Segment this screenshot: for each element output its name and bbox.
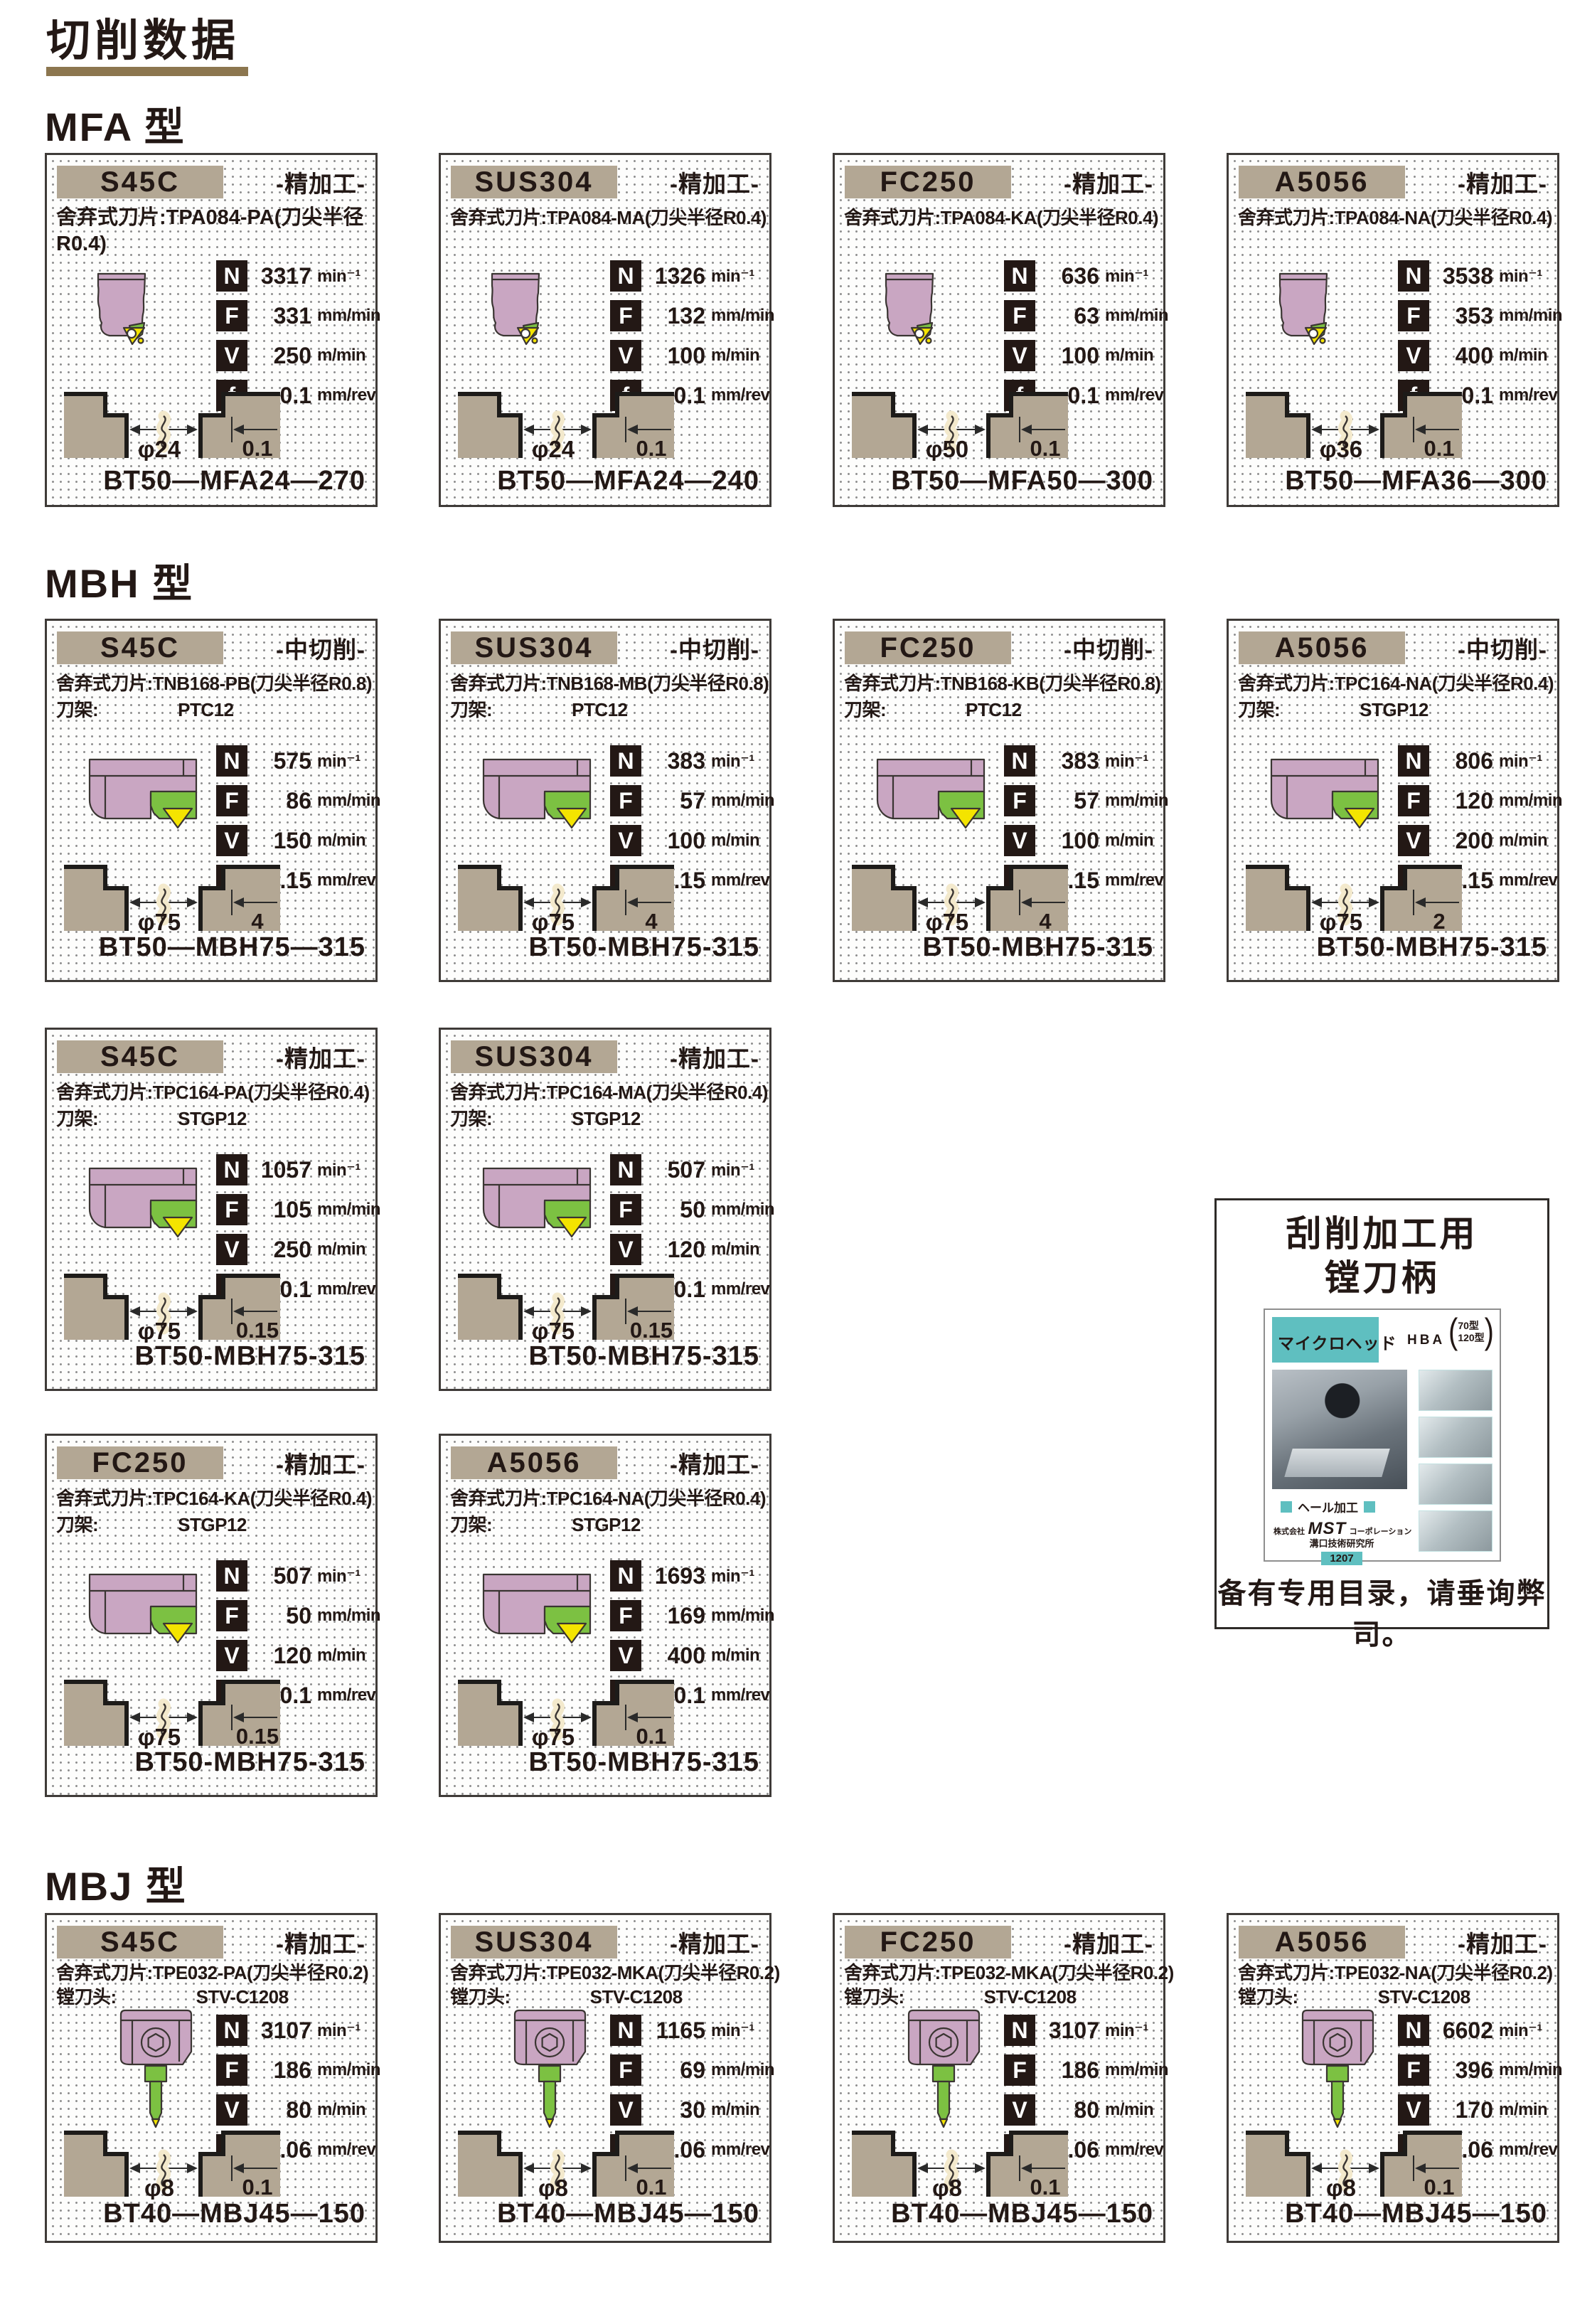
variant-120: 120型	[1458, 1332, 1484, 1343]
cutting-data-card: SUS304 -精加工- 舍弃式刀片:TPE032-MKA(刀尖半径R0.2) …	[439, 1913, 771, 2243]
param-row-feed: F 57 mm/min	[1004, 785, 1168, 816]
bore-diameter-label: φ24	[138, 436, 181, 461]
param-row-cutting-speed: V 400 m/min	[610, 1640, 774, 1671]
n-value: 3107	[253, 2017, 311, 2044]
material-badge: S45C	[57, 631, 223, 664]
holder-value: STV-C1208	[590, 1985, 683, 2009]
cut-depth-label: 0.1	[636, 2175, 666, 2200]
f-value: 396	[1435, 2057, 1493, 2084]
promo-title-line1: 刮削加工用	[1286, 1214, 1478, 1254]
insert-label: 舍弃式刀片:	[1238, 207, 1335, 228]
tool-info: 舍弃式刀片:TPC164-NA(刀尖半径R0.4) 刀架: STGP12	[450, 1486, 767, 1538]
param-row-spindle-speed: N 1057 min⁻¹	[216, 1154, 380, 1185]
insert-value: TPE032-MKA(刀尖半径R0.2)	[941, 1962, 1174, 1983]
workpiece-diagram-icon: φ75 0.15	[452, 1272, 680, 1343]
v-value: 250	[253, 343, 311, 369]
process-label: -精加工-	[276, 1446, 365, 1480]
v-value: 100	[1041, 343, 1099, 369]
cutting-data-card: S45C -精加工- 舍弃式刀片:TPE032-PA(刀尖半径R0.2) 镗刀头…	[45, 1913, 378, 2243]
holder-label: 刀架:	[450, 697, 492, 723]
card-row-mbh-1: S45C -中切削- 舍弃式刀片:TNB168-PB(刀尖半径R0.8) 刀架:…	[45, 619, 1559, 982]
param-row-feed: F 57 mm/min	[610, 785, 774, 816]
cut-depth-label: 4	[251, 909, 264, 934]
material-name: FC250	[880, 166, 976, 198]
holder-spec-line: 刀架: STGP12	[56, 1106, 373, 1132]
insert-spec-line: 舍弃式刀片:TPC164-KA(刀尖半径R0.4)	[56, 1486, 373, 1512]
cutting-parameters: N 1326 min⁻¹ F 132 mm/min V 100 m/min f …	[610, 260, 774, 411]
cutting-data-card: FC250 -精加工- 舍弃式刀片:TPC164-KA(刀尖半径R0.4) 刀架…	[45, 1434, 378, 1797]
insert-spec-line: 舍弃式刀片:TPA084-PA(刀尖半径R0.4)	[56, 205, 373, 257]
holder-spec-line: 刀架: STGP12	[450, 1512, 767, 1538]
insert-spec-line: 舍弃式刀片:TNB168-PB(刀尖半径R0.8)	[56, 671, 373, 697]
n-unit: min⁻¹	[711, 266, 754, 287]
holder-label: 镗刀头:	[844, 1985, 904, 2009]
insert-value: TNB168-PB(刀尖半径R0.8)	[153, 673, 372, 694]
catalog-page: 切削数据 MFA 型 S45C -精加工- 舍弃式刀片:TPA084-PA(刀尖…	[0, 0, 1570, 2324]
v-unit: m/min	[1499, 831, 1547, 851]
n-unit: min⁻¹	[711, 1566, 754, 1587]
v-icon: V	[216, 825, 247, 856]
material-badge: S45C	[57, 166, 223, 198]
n-icon: N	[610, 2015, 641, 2046]
fr-unit: mm/rev	[317, 870, 375, 890]
param-row-cutting-speed: V 100 m/min	[1004, 825, 1168, 856]
cut-depth-label: 0.1	[636, 436, 666, 461]
fr-unit: mm/rev	[317, 1685, 375, 1705]
n-unit: min⁻¹	[711, 2020, 754, 2041]
f-icon: F	[1398, 300, 1429, 331]
process-tag: ヘール加工	[1281, 1498, 1375, 1515]
v-value: 30	[647, 2097, 705, 2123]
boring-head-tool-icon	[115, 2008, 197, 2128]
teal-square-icon	[1364, 1501, 1375, 1513]
holder-label: 镗刀头:	[1238, 1985, 1298, 2009]
cutting-data-card: A5056 -中切削- 舍弃式刀片:TPC164-NA(刀尖半径R0.4) 刀架…	[1227, 619, 1559, 982]
insert-label: 舍弃式刀片:	[844, 673, 941, 694]
machine-photo	[1272, 1370, 1407, 1489]
cut-depth-label: 0.15	[236, 1318, 279, 1343]
v-value: 100	[647, 828, 705, 854]
fr-unit: mm/rev	[1105, 2140, 1163, 2160]
fr-unit: mm/rev	[317, 385, 375, 405]
section-title-mbj: MBJ 型	[45, 1855, 187, 1912]
material-name: FC250	[92, 1447, 188, 1479]
catalog-model: HBA	[1407, 1333, 1445, 1348]
material-name: A5056	[1275, 166, 1369, 198]
product-code: BT50—MFA24—240	[497, 466, 759, 496]
f-unit: mm/min	[711, 791, 774, 811]
material-badge: A5056	[1239, 631, 1405, 664]
insert-label: 舍弃式刀片:	[56, 1488, 153, 1509]
v-unit: m/min	[711, 2100, 759, 2120]
face-cutting-tool-icon	[92, 272, 149, 346]
catalog-number-badge: 1207	[1321, 1552, 1362, 1565]
f-unit: mm/min	[1105, 791, 1168, 811]
card-header: S45C -精加工-	[57, 1925, 368, 1959]
insert-label: 舍弃式刀片:	[56, 206, 166, 229]
n-unit: min⁻¹	[1499, 266, 1542, 287]
cut-depth-label: 0.1	[1424, 436, 1454, 461]
insert-value: TPE032-NA(刀尖半径R0.2)	[1335, 1962, 1553, 1983]
card-header: A5056 -中切削-	[1239, 631, 1550, 665]
holder-value: STGP12	[572, 1512, 641, 1538]
holder-value: STV-C1208	[196, 1985, 289, 2009]
insert-label: 舍弃式刀片:	[56, 1962, 153, 1983]
cutting-parameters: N 3538 min⁻¹ F 353 mm/min V 400 m/min f …	[1398, 260, 1562, 411]
tool-info: 舍弃式刀片:TPC164-KA(刀尖半径R0.4) 刀架: STGP12	[56, 1486, 373, 1538]
process-label: -精加工-	[670, 1925, 759, 1959]
catalog-product-name: マイクロヘッド	[1278, 1330, 1397, 1354]
n-value: 3107	[1041, 2017, 1099, 2044]
face-cutting-tool-icon	[486, 272, 543, 346]
company-suffix: コーポレーション	[1350, 1528, 1412, 1536]
card-row-mbj: S45C -精加工- 舍弃式刀片:TPE032-PA(刀尖半径R0.2) 镗刀头…	[45, 1913, 1559, 2243]
n-value: 6602	[1435, 2017, 1493, 2044]
material-badge: FC250	[57, 1446, 223, 1479]
bore-diameter-label: φ24	[532, 436, 575, 461]
holder-value: STGP12	[572, 1106, 641, 1132]
material-name: SUS304	[475, 632, 594, 664]
product-code: BT40—MBJ45—150	[497, 2199, 759, 2229]
v-value: 250	[253, 1237, 311, 1263]
card-header: FC250 -精加工-	[845, 1925, 1156, 1959]
product-code: BT40—MBJ45—150	[103, 2199, 365, 2229]
param-row-cutting-speed: V 250 m/min	[216, 1234, 380, 1265]
material-badge: SUS304	[451, 166, 617, 198]
cut-depth-label: 0.15	[630, 1318, 673, 1343]
f-value: 353	[1435, 303, 1493, 329]
promo-note: 备有专用目录，请垂询弊司。	[1217, 1570, 1547, 1653]
insert-value: TPC164-NA(刀尖半径R0.4)	[547, 1488, 766, 1509]
param-row-cutting-speed: V 80 m/min	[216, 2094, 380, 2126]
v-unit: m/min	[317, 1240, 365, 1259]
product-code: BT40—MBJ45—150	[1285, 2199, 1547, 2229]
f-unit: mm/min	[317, 1200, 380, 1220]
fr-unit: mm/rev	[1499, 2140, 1557, 2160]
company-prefix: 株式会社	[1273, 1528, 1305, 1536]
boring-head-tool-icon	[1297, 2008, 1379, 2128]
bore-diameter-label: φ75	[532, 1318, 575, 1343]
v-icon: V	[216, 2094, 247, 2126]
v-value: 100	[1041, 828, 1099, 854]
param-row-cutting-speed: V 30 m/min	[610, 2094, 774, 2126]
insert-spec-line: 舍弃式刀片:TPC164-NA(刀尖半径R0.4)	[1238, 671, 1554, 697]
holder-spec-line: 镗刀头: STV-C1208	[56, 1985, 373, 2009]
boring-bar-tool-icon	[478, 757, 595, 830]
v-unit: m/min	[711, 1240, 759, 1259]
insert-spec-line: 舍弃式刀片:TPC164-NA(刀尖半径R0.4)	[450, 1486, 767, 1512]
v-icon: V	[216, 1234, 247, 1265]
f-icon: F	[610, 1194, 641, 1225]
f-unit: mm/min	[1499, 2060, 1562, 2080]
card-header: S45C -精加工-	[57, 1040, 368, 1074]
holder-label: 刀架:	[844, 697, 886, 723]
promo-title-line2: 镗刀柄	[1325, 1258, 1440, 1298]
n-icon: N	[610, 1560, 641, 1592]
tool-info: 舍弃式刀片:TPC164-PA(刀尖半径R0.4) 刀架: STGP12	[56, 1080, 373, 1132]
param-row-spindle-speed: N 3107 min⁻¹	[1004, 2015, 1168, 2046]
process-label: -精加工-	[1064, 165, 1153, 199]
workpiece-diagram-icon: φ75 0.15	[58, 1678, 286, 1749]
material-badge: SUS304	[451, 1926, 617, 1958]
holder-spec-line: 刀架: STGP12	[1238, 697, 1554, 723]
holder-label: 刀架:	[450, 1106, 492, 1132]
card-header: S45C -中切削-	[57, 631, 368, 665]
v-unit: m/min	[317, 1646, 365, 1665]
insert-value: TPE032-MKA(刀尖半径R0.2)	[547, 1962, 780, 1983]
n-value: 575	[253, 748, 311, 774]
v-value: 400	[647, 1643, 705, 1669]
param-row-feed: F 63 mm/min	[1004, 300, 1168, 331]
holder-label: 刀架:	[56, 697, 98, 723]
f-icon: F	[1398, 785, 1429, 816]
param-row-cutting-speed: V 100 m/min	[1004, 340, 1168, 371]
material-name: S45C	[100, 1926, 180, 1958]
card-header: SUS304 -精加工-	[451, 165, 762, 199]
v-unit: m/min	[1499, 346, 1547, 366]
v-unit: m/min	[711, 1646, 759, 1665]
param-row-spindle-speed: N 1693 min⁻¹	[610, 1560, 774, 1592]
section-title-mfa: MFA 型	[45, 95, 186, 153]
f-value: 186	[1041, 2057, 1099, 2084]
n-unit: min⁻¹	[317, 266, 361, 287]
n-value: 3317	[253, 263, 311, 289]
v-value: 80	[253, 2097, 311, 2123]
n-value: 1326	[647, 263, 705, 289]
v-icon: V	[216, 1640, 247, 1671]
bore-diameter-label: φ8	[1326, 2175, 1356, 2200]
insert-label: 舍弃式刀片:	[450, 1488, 547, 1509]
tool-info: 舍弃式刀片:TPA084-KA(刀尖半径R0.4)	[844, 205, 1160, 231]
f-icon: F	[1004, 785, 1035, 816]
material-badge: FC250	[845, 631, 1011, 664]
f-icon: F	[1004, 300, 1035, 331]
holder-spec-line: 刀架: PTC12	[56, 697, 373, 723]
product-code: BT50-MBH75-315	[529, 1747, 759, 1778]
material-badge: A5056	[1239, 166, 1405, 198]
bore-diameter-label: φ36	[1320, 436, 1362, 461]
tool-info: 舍弃式刀片:TNB168-MB(刀尖半径R0.8) 刀架: PTC12	[450, 671, 767, 723]
title-underline	[46, 67, 248, 76]
f-value: 169	[647, 1603, 705, 1629]
param-row-feed: F 50 mm/min	[610, 1194, 774, 1225]
f-value: 186	[253, 2057, 311, 2084]
param-row-cutting-speed: V 120 m/min	[610, 1234, 774, 1265]
n-icon: N	[1398, 2015, 1429, 2046]
card-header: S45C -精加工-	[57, 165, 368, 199]
process-label: -精加工-	[670, 1446, 759, 1480]
process-label: -精加工-	[670, 1040, 759, 1074]
param-row-feed: F 132 mm/min	[610, 300, 774, 331]
holder-value: PTC12	[572, 697, 627, 723]
f-unit: mm/min	[317, 2060, 380, 2080]
bore-diameter-label: φ75	[532, 1724, 575, 1749]
v-value: 120	[647, 1237, 705, 1263]
cutting-data-card: A5056 -精加工- 舍弃式刀片:TPA084-NA(刀尖半径R0.4)	[1227, 153, 1559, 507]
fr-unit: mm/rev	[711, 1279, 769, 1299]
n-icon: N	[1004, 2015, 1035, 2046]
param-row-cutting-speed: V 200 m/min	[1398, 825, 1562, 856]
n-icon: N	[216, 1154, 247, 1185]
cut-depth-label: 0.1	[1030, 436, 1060, 461]
cutting-parameters: N 636 min⁻¹ F 63 mm/min V 100 m/min f 0.…	[1004, 260, 1168, 411]
f-icon: F	[610, 1600, 641, 1631]
insert-value: TPC164-NA(刀尖半径R0.4)	[1335, 673, 1554, 694]
cut-depth-label: 0.1	[242, 2175, 272, 2200]
process-label: -精加工-	[276, 1040, 365, 1074]
insert-value: TPA084-KA(刀尖半径R0.4)	[941, 207, 1158, 228]
n-value: 1693	[647, 1563, 705, 1589]
cutting-data-card: A5056 -精加工- 舍弃式刀片:TPC164-NA(刀尖半径R0.4) 刀架…	[439, 1434, 771, 1797]
bore-diameter-label: φ8	[932, 2175, 962, 2200]
bore-diameter-label: φ75	[138, 1318, 181, 1343]
fr-unit: mm/rev	[711, 870, 769, 890]
param-row-cutting-speed: V 100 m/min	[610, 340, 774, 371]
n-unit: min⁻¹	[317, 1160, 361, 1180]
card-row-mfa: S45C -精加工- 舍弃式刀片:TPA084-PA(刀尖半径R0.4)	[45, 153, 1559, 507]
f-unit: mm/min	[711, 2060, 774, 2080]
workpiece-diagram-icon: φ24 0.1	[452, 390, 680, 461]
boring-head-tool-icon	[903, 2008, 985, 2128]
holder-label: 刀架:	[56, 1106, 98, 1132]
product-code: BT50—MFA50—300	[891, 466, 1153, 496]
v-icon: V	[1398, 2094, 1429, 2126]
f-unit: mm/min	[1499, 791, 1562, 811]
insert-spec-line: 舍弃式刀片:TPE032-MKA(刀尖半径R0.2)	[844, 1961, 1160, 1985]
product-code: BT40—MBJ45—150	[891, 2199, 1153, 2229]
brand-logo: MST	[1308, 1519, 1346, 1538]
workpiece-diagram-icon: φ24 0.1	[58, 390, 286, 461]
f-icon: F	[610, 2054, 641, 2086]
f-icon: F	[610, 300, 641, 331]
material-name: SUS304	[475, 1041, 594, 1073]
product-code: BT50-MBH75-315	[923, 932, 1153, 963]
holder-spec-line: 刀架: STGP12	[56, 1512, 373, 1538]
v-unit: m/min	[317, 831, 365, 851]
n-value: 383	[1041, 748, 1099, 774]
card-header: SUS304 -精加工-	[451, 1040, 762, 1074]
holder-label: 刀架:	[56, 1512, 98, 1538]
page-title: 切削数据	[46, 4, 240, 68]
param-row-spindle-speed: N 383 min⁻¹	[610, 745, 774, 777]
n-icon: N	[216, 260, 247, 292]
n-unit: min⁻¹	[317, 1566, 361, 1587]
holder-value: STV-C1208	[1378, 1985, 1470, 2009]
fr-unit: mm/rev	[711, 2140, 769, 2160]
cutting-data-card: A5056 -精加工- 舍弃式刀片:TPE032-NA(刀尖半径R0.2) 镗刀…	[1227, 1913, 1559, 2243]
bore-diameter-label: φ75	[138, 1724, 181, 1749]
workpiece-diagram-icon: φ8 0.1	[846, 2128, 1074, 2200]
process-label: -精加工-	[276, 1925, 365, 1959]
tool-info: 舍弃式刀片:TNB168-PB(刀尖半径R0.8) 刀架: PTC12	[56, 671, 373, 723]
f-value: 105	[253, 1197, 311, 1223]
param-row-cutting-speed: V 170 m/min	[1398, 2094, 1562, 2126]
n-unit: min⁻¹	[1499, 2020, 1542, 2041]
f-value: 50	[647, 1197, 705, 1223]
material-badge: SUS304	[451, 631, 617, 664]
tool-info: 舍弃式刀片:TPE032-MKA(刀尖半径R0.2) 镗刀头: STV-C120…	[450, 1961, 767, 2009]
param-row-feed: F 331 mm/min	[216, 300, 380, 331]
v-icon: V	[1004, 340, 1035, 371]
cutting-data-card: FC250 -中切削- 舍弃式刀片:TNB168-KB(刀尖半径R0.8) 刀架…	[833, 619, 1165, 982]
insert-label: 舍弃式刀片:	[450, 1082, 547, 1103]
insert-value: TPC164-KA(刀尖半径R0.4)	[153, 1488, 372, 1509]
n-icon: N	[610, 745, 641, 777]
cut-depth-label: 0.1	[1424, 2175, 1454, 2200]
f-unit: mm/min	[317, 791, 380, 811]
n-icon: N	[1004, 745, 1035, 777]
param-row-spindle-speed: N 6602 min⁻¹	[1398, 2015, 1562, 2046]
n-icon: N	[216, 745, 247, 777]
n-value: 3538	[1435, 263, 1493, 289]
n-value: 1165	[647, 2017, 705, 2044]
v-unit: m/min	[711, 831, 759, 851]
face-cutting-tool-icon	[1274, 272, 1331, 346]
insert-spec-line: 舍弃式刀片:TNB168-MB(刀尖半径R0.8)	[450, 671, 767, 697]
material-name: FC250	[880, 1926, 976, 1958]
material-name: S45C	[100, 166, 180, 198]
param-row-spindle-speed: N 1165 min⁻¹	[610, 2015, 774, 2046]
boring-bar-tool-icon	[84, 757, 201, 830]
f-value: 120	[1435, 788, 1493, 814]
section-title-mbh: MBH 型	[45, 552, 193, 609]
insert-spec-line: 舍弃式刀片:TPA084-NA(刀尖半径R0.4)	[1238, 205, 1554, 231]
workpiece-diagram-icon: φ75 0.15	[58, 1272, 286, 1343]
n-value: 383	[647, 748, 705, 774]
param-row-feed: F 169 mm/min	[610, 1600, 774, 1631]
fr-unit: mm/rev	[711, 385, 769, 405]
material-name: S45C	[100, 632, 180, 664]
v-value: 120	[253, 1643, 311, 1669]
f-icon: F	[216, 785, 247, 816]
holder-value: STGP12	[1360, 697, 1429, 723]
sample-photo-4	[1419, 1510, 1492, 1552]
material-badge: S45C	[57, 1040, 223, 1073]
material-name: A5056	[1275, 1926, 1369, 1958]
cut-depth-label: 0.1	[1030, 2175, 1060, 2200]
holder-spec-line: 刀架: PTC12	[844, 697, 1160, 723]
process-label: -中切削-	[276, 631, 365, 665]
n-unit: min⁻¹	[317, 2020, 361, 2041]
f-unit: mm/min	[711, 306, 774, 326]
holder-value: STV-C1208	[984, 1985, 1077, 2009]
n-icon: N	[1398, 260, 1429, 292]
f-value: 50	[253, 1603, 311, 1629]
process-label: -精加工-	[276, 165, 365, 199]
variant-70: 70型	[1458, 1320, 1479, 1331]
insert-spec-line: 舍弃式刀片:TPE032-NA(刀尖半径R0.2)	[1238, 1961, 1554, 1985]
sample-photo-1	[1419, 1370, 1492, 1411]
card-header: SUS304 -中切削-	[451, 631, 762, 665]
insert-value: TNB168-MB(刀尖半径R0.8)	[547, 673, 769, 694]
n-unit: min⁻¹	[711, 1160, 754, 1180]
param-row-spindle-speed: N 3538 min⁻¹	[1398, 260, 1562, 292]
v-unit: m/min	[1105, 2100, 1153, 2120]
v-unit: m/min	[317, 2100, 365, 2120]
holder-value: PTC12	[966, 697, 1021, 723]
n-unit: min⁻¹	[1499, 751, 1542, 772]
f-value: 69	[647, 2057, 705, 2084]
product-code: BT50-MBH75-315	[135, 1341, 365, 1372]
n-unit: min⁻¹	[711, 751, 754, 772]
workpiece-diagram-icon: φ75 0.1	[452, 1678, 680, 1749]
product-code: BT50—MBH75—315	[99, 932, 365, 963]
bore-diameter-label: φ75	[1320, 909, 1362, 934]
cut-depth-label: 4	[645, 909, 658, 934]
param-row-feed: F 69 mm/min	[610, 2054, 774, 2086]
v-unit: m/min	[1499, 2100, 1547, 2120]
variant-list: 70型 120型	[1458, 1320, 1484, 1344]
